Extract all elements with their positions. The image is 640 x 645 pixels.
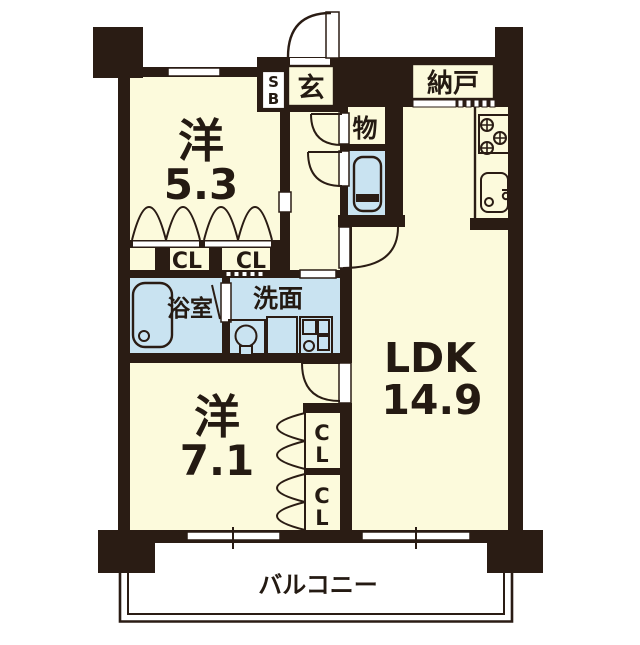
wall-closet-column-mid	[305, 468, 340, 475]
label-balcony: バルコニー	[258, 571, 378, 599]
washer-drain-box	[240, 346, 252, 355]
floor-plan: 洋 5.3 洋 7.1 LDK 14.9 玄 S B 納戸 物 浴室 洗面 CL…	[0, 0, 640, 640]
wall-toilet-bottom	[338, 215, 405, 227]
door-leaf-west2	[339, 363, 351, 403]
pillar-bottom-left	[98, 530, 155, 573]
fold-dash	[474, 100, 479, 107]
door-gap-west1	[279, 192, 291, 212]
label-western2-size: 7.1	[180, 436, 254, 485]
label-entrance: 玄	[298, 72, 325, 104]
door-gap-toilet	[339, 151, 349, 186]
label-washroom: 洗面	[253, 284, 303, 313]
wall-toilet-right	[385, 103, 403, 227]
fold-dash	[226, 272, 231, 277]
pillar-bottom-right	[487, 530, 543, 573]
wall-closet-toilet-divider	[345, 144, 385, 151]
label-small-closet: 物	[352, 114, 377, 143]
wall-closet-stub-1	[155, 244, 170, 274]
entrance-door-leaf	[326, 12, 339, 58]
storage-opening	[413, 100, 456, 107]
wall-hall-left	[280, 100, 290, 242]
wall-ldk-left-low	[340, 403, 352, 532]
door-leaf-ldk	[339, 227, 350, 268]
door-gap-washroom	[300, 270, 336, 278]
label-closet1: CL	[172, 249, 202, 274]
door-gap-small-closet	[339, 113, 349, 144]
wall-closet-stub-2	[209, 244, 222, 274]
door-gap-bath	[221, 283, 231, 322]
label-closet4-c: C	[314, 484, 329, 508]
label-ldk-size: 14.9	[381, 376, 482, 424]
label-storage: 納戸	[427, 68, 479, 99]
label-western1-size: 5.3	[164, 160, 238, 209]
fold-dash	[482, 100, 487, 107]
label-ldk-name: LDK	[384, 334, 478, 382]
toilet-seat-band	[356, 194, 379, 202]
closet-opening-1	[133, 242, 199, 247]
label-closet3-l: L	[315, 443, 328, 467]
closet-opening-2	[205, 242, 271, 247]
label-bath: 浴室	[167, 295, 213, 322]
wall-kitchen-stub	[470, 218, 523, 230]
fold-dash	[458, 100, 463, 107]
window-west1-top	[168, 68, 220, 76]
label-closet4-l: L	[315, 506, 328, 530]
floor-plan-svg: 洋 5.3 洋 7.1 LDK 14.9 玄 S B 納戸 物 浴室 洗面 CL…	[0, 0, 640, 640]
fold-dash	[466, 100, 471, 107]
wall-right	[508, 57, 523, 540]
label-closet3-c: C	[314, 421, 329, 445]
label-shoebox-b: B	[268, 90, 279, 108]
label-closet2: CL	[236, 249, 266, 274]
wall-closet-column-top	[303, 403, 352, 413]
label-shoebox-s: S	[268, 73, 279, 91]
fold-dash	[490, 100, 495, 107]
wall-left	[118, 67, 130, 540]
pillar-top-right	[495, 27, 523, 60]
wall-closet-stub-3	[270, 244, 290, 274]
